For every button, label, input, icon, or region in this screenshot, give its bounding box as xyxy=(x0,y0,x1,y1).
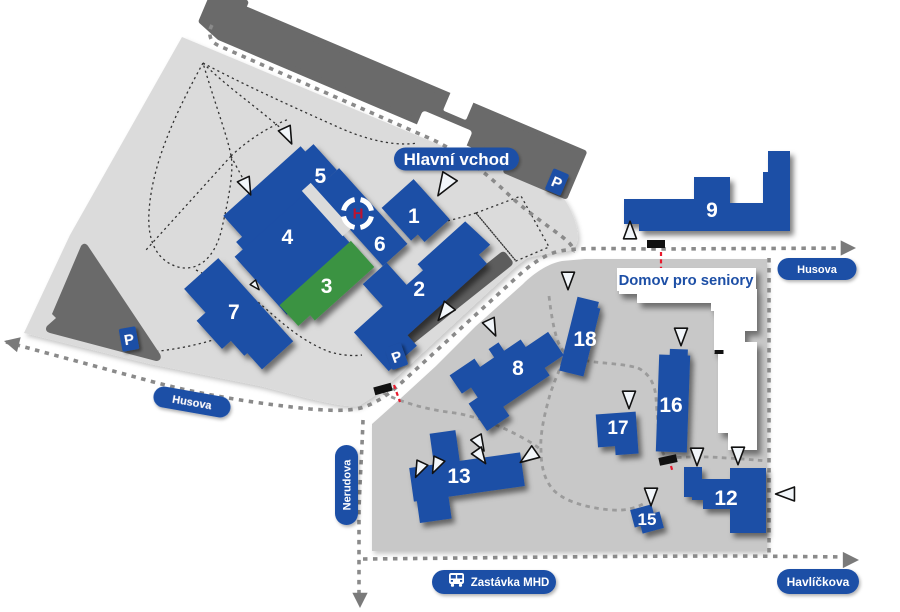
svg-text:3: 3 xyxy=(321,275,333,298)
svg-text:Domov pro seniory: Domov pro seniory xyxy=(619,273,755,289)
svg-text:Havlíčkova: Havlíčkova xyxy=(787,575,850,589)
svg-text:17: 17 xyxy=(607,418,628,439)
svg-text:18: 18 xyxy=(573,328,597,351)
svg-text:2: 2 xyxy=(413,278,425,301)
svg-text:5: 5 xyxy=(314,165,326,188)
svg-text:Hlavní vchod: Hlavní vchod xyxy=(404,150,510,169)
svg-text:8: 8 xyxy=(512,357,524,380)
svg-text:Nerudova: Nerudova xyxy=(341,459,353,511)
svg-text:9: 9 xyxy=(706,199,718,222)
svg-text:4: 4 xyxy=(282,226,294,249)
svg-text:15: 15 xyxy=(638,510,657,529)
svg-text:7: 7 xyxy=(228,301,240,324)
svg-text:16: 16 xyxy=(659,394,682,417)
svg-text:6: 6 xyxy=(374,233,386,256)
svg-text:13: 13 xyxy=(447,465,470,488)
svg-text:H: H xyxy=(353,206,364,223)
svg-text:1: 1 xyxy=(408,205,420,228)
svg-text:Zastávka MHD: Zastávka MHD xyxy=(471,577,550,589)
svg-text:12: 12 xyxy=(714,487,737,510)
svg-text:Husova: Husova xyxy=(797,264,838,276)
